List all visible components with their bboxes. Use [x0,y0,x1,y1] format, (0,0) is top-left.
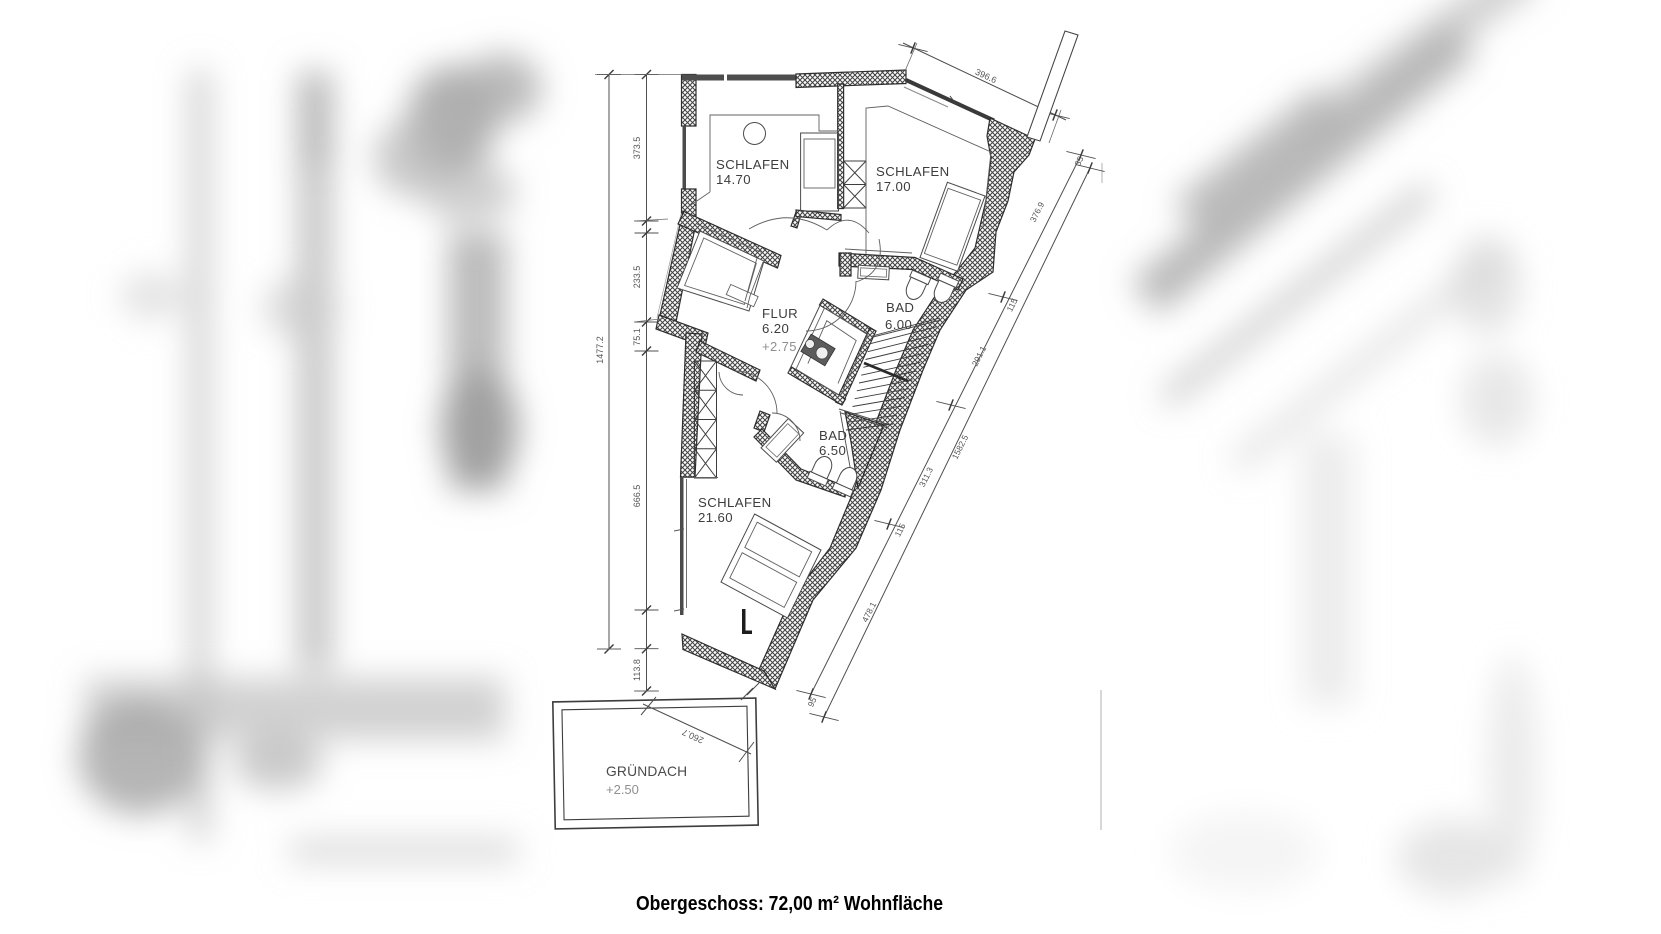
svg-text:17.00: 17.00 [876,179,911,194]
svg-text:GRÜNDACH: GRÜNDACH [606,762,687,779]
svg-text:SCHLAFEN: SCHLAFEN [716,157,790,172]
svg-text:Obergeschoss: 72,00 m² Wohnfl: Obergeschoss: 72,00 m² Wohnfläche [636,893,943,915]
svg-text:6.20: 6.20 [762,321,789,336]
svg-text:75.1: 75.1 [632,328,642,346]
svg-text:14.70: 14.70 [716,172,751,187]
svg-text:113.8: 113.8 [632,659,642,681]
svg-text:BAD: BAD [886,300,914,315]
svg-text:FLUR: FLUR [762,306,798,321]
svg-text:+2.50: +2.50 [606,782,639,797]
svg-text:233.5: 233.5 [632,266,642,289]
svg-text:21.60: 21.60 [698,510,733,525]
svg-text:BAD: BAD [819,428,847,443]
svg-text:+2.75: +2.75 [762,339,797,354]
svg-text:6.00: 6.00 [885,317,912,332]
svg-text:373.5: 373.5 [632,137,642,160]
svg-text:666.5: 666.5 [632,485,642,508]
svg-text:SCHLAFEN: SCHLAFEN [876,164,950,179]
svg-text:1477.2: 1477.2 [595,336,605,364]
svg-text:SCHLAFEN: SCHLAFEN [698,495,772,510]
svg-text:6.50: 6.50 [819,443,846,458]
